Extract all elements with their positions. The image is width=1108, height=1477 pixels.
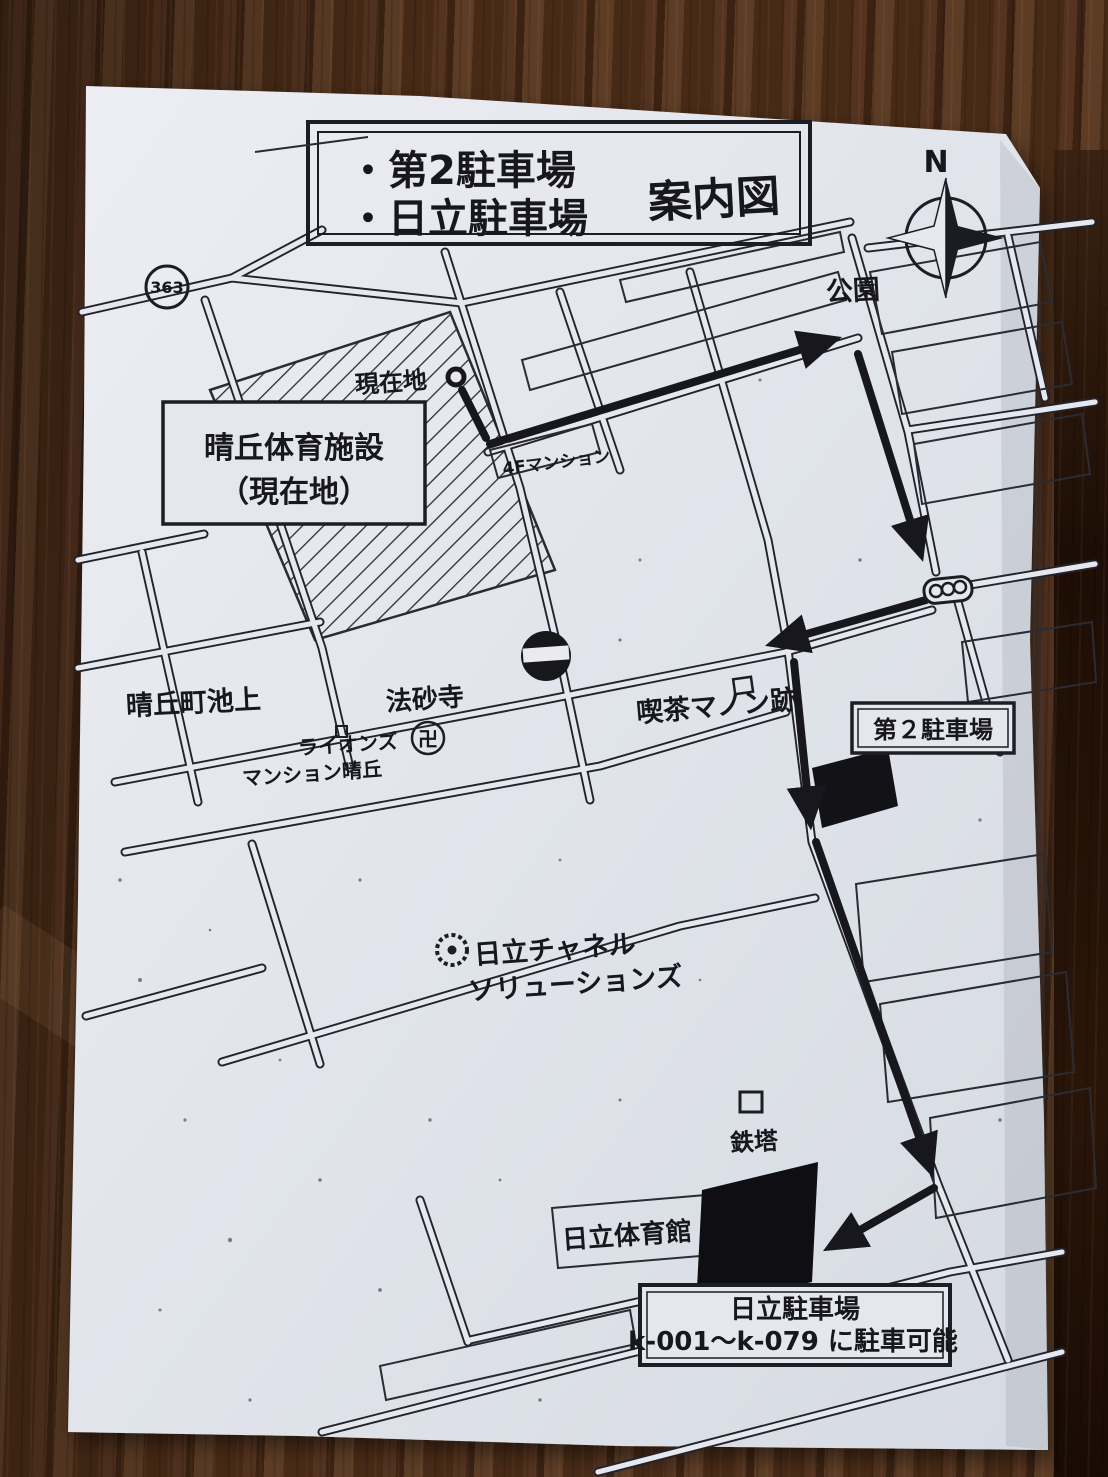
facility-name: 晴丘体育施設 bbox=[204, 431, 384, 466]
no-entry-sign bbox=[521, 631, 571, 681]
lot2-label: 第２駐車場 bbox=[873, 716, 993, 744]
park-label: 公園 bbox=[825, 274, 881, 308]
hitachi-lot-box: 日立駐車場 k-001～k-079 に駐車可能 bbox=[628, 1285, 958, 1365]
hitachi-lot-range: k-001～k-079 に駐車可能 bbox=[628, 1326, 958, 1357]
title-line1: ・第2駐車場 bbox=[348, 148, 576, 194]
lot2-box: 第２駐車場 bbox=[852, 703, 1014, 753]
traffic-signal-icon bbox=[923, 576, 973, 605]
temple-label: 法砂寺 bbox=[385, 682, 465, 717]
title-suffix: 案内図 bbox=[647, 171, 781, 229]
temple-manji-mark: 卍 bbox=[418, 727, 438, 751]
guide-map-photo: 363 N 卍 ・第2駐車場 ・日立駐車場 案内図 bbox=[0, 0, 1108, 1477]
route-363-number: 363 bbox=[150, 278, 183, 297]
current-location-label: 現在地 bbox=[354, 366, 428, 399]
title-line2: ・日立駐車場 bbox=[348, 196, 588, 242]
hitachi-lot-name: 日立駐車場 bbox=[730, 1294, 860, 1325]
facility-box: 晴丘体育施設 （現在地） bbox=[163, 402, 425, 524]
compass-north-label: N bbox=[923, 145, 948, 180]
tower-label: 鉄塔 bbox=[729, 1127, 779, 1158]
current-location-marker bbox=[448, 369, 464, 385]
facility-current-location: （現在地） bbox=[219, 475, 369, 510]
